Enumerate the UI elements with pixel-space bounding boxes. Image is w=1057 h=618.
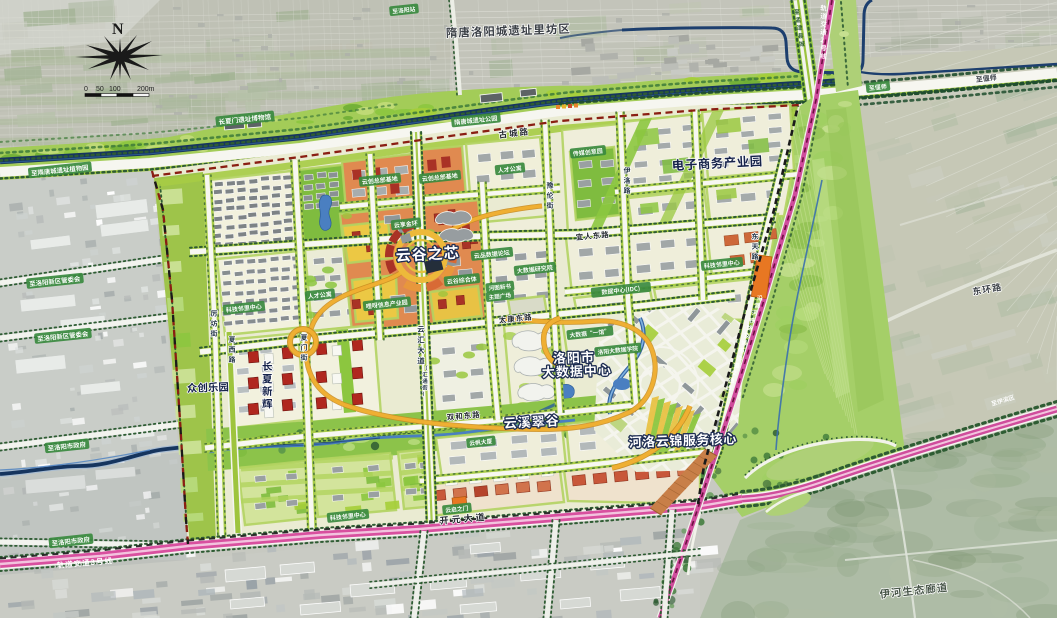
svg-text:50: 50 xyxy=(96,86,104,93)
svg-text:100: 100 xyxy=(109,86,121,93)
svg-text:N: N xyxy=(112,21,124,38)
svg-text:0: 0 xyxy=(84,86,88,93)
svg-text:200m: 200m xyxy=(137,86,155,93)
